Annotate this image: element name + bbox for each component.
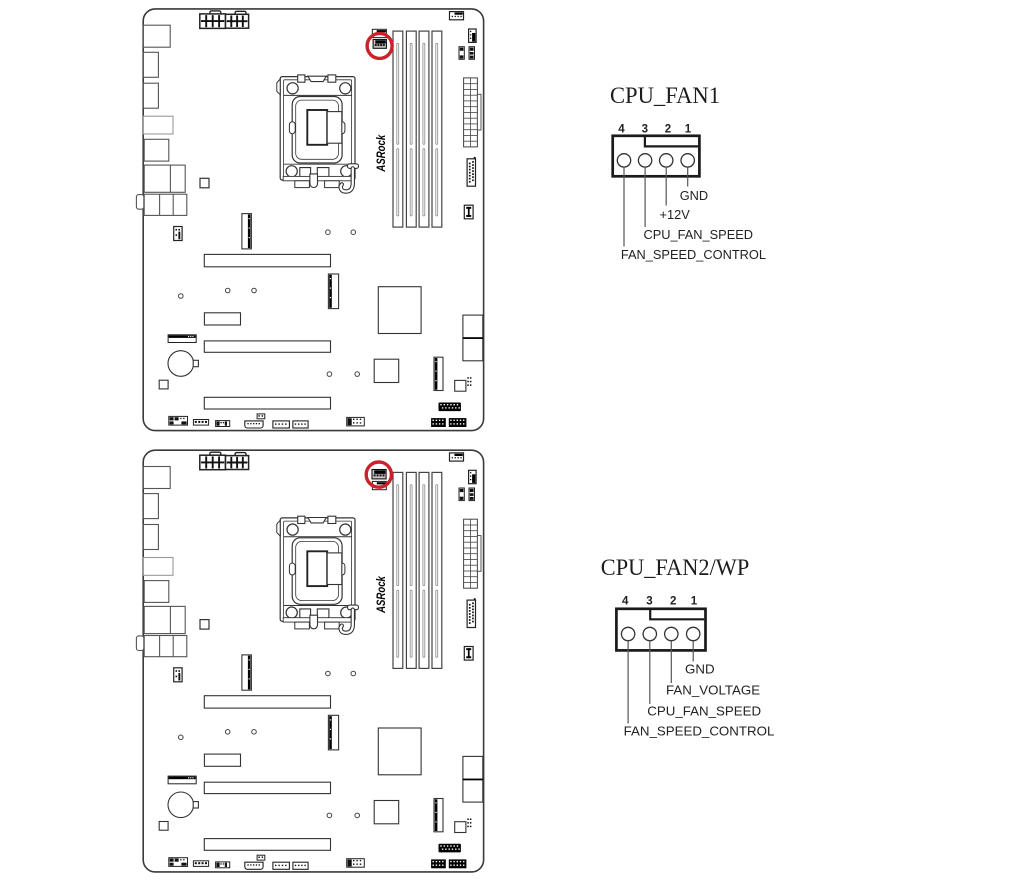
svg-text:CPU_FAN_SPEED: CPU_FAN_SPEED: [644, 227, 754, 242]
svg-text:GND: GND: [680, 188, 708, 203]
svg-text:ASRock: ASRock: [375, 134, 388, 172]
svg-text:FAN_SPEED_CONTROL: FAN_SPEED_CONTROL: [621, 247, 766, 262]
svg-text:1: 1: [691, 596, 698, 608]
svg-text:1: 1: [685, 124, 692, 136]
svg-text:FAN_VOLTAGE: FAN_VOLTAGE: [666, 683, 760, 698]
svg-text:FAN_SPEED_CONTROL: FAN_SPEED_CONTROL: [624, 724, 775, 739]
svg-text:GND: GND: [685, 662, 715, 677]
svg-text:CPU_FAN2/WP: CPU_FAN2/WP: [601, 555, 750, 581]
svg-text:4: 4: [618, 124, 625, 136]
svg-text:3: 3: [642, 124, 648, 136]
svg-text:CPU_FAN1: CPU_FAN1: [610, 83, 720, 109]
svg-text:2: 2: [665, 124, 671, 136]
svg-text:+12V: +12V: [660, 207, 691, 222]
svg-text:4: 4: [622, 596, 629, 608]
svg-text:ASRock: ASRock: [375, 575, 388, 613]
svg-text:CPU_FAN_SPEED: CPU_FAN_SPEED: [647, 704, 761, 719]
svg-text:3: 3: [646, 596, 652, 608]
svg-text:2: 2: [670, 596, 676, 608]
